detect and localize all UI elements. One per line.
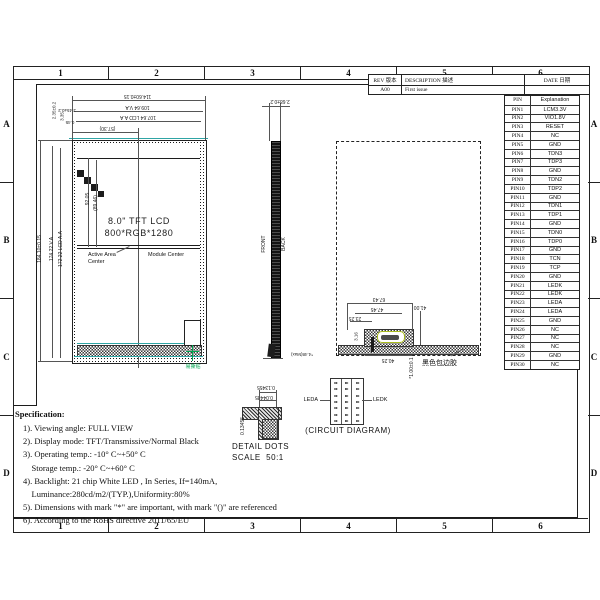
pin-signal: GND [531, 317, 579, 325]
extension-line [38, 361, 72, 362]
fpc-connector-core [381, 335, 399, 340]
pin-signal: LCM3.3V [531, 106, 579, 114]
pin-row: PIN10 TDP2 [505, 184, 579, 193]
pin-row: PIN27 NC [505, 334, 579, 343]
extension-line [276, 390, 277, 407]
pin-row: PIN30 NC [505, 360, 579, 369]
pin-signal: TDN3 [531, 150, 579, 158]
tear-sticker-mark-v [192, 345, 193, 361]
extension-line [205, 96, 206, 140]
pin-row: PIN6 TDN3 [505, 149, 579, 158]
pin-row: PIN15 TDN0 [505, 228, 579, 237]
pin-row: PIN5 GND [505, 140, 579, 149]
diode-icon: ▸▸ [352, 418, 363, 424]
pin-signal: GND [531, 194, 579, 202]
bottom-notch [184, 320, 201, 346]
side-back-label: BACK [281, 232, 287, 256]
dim-center-y-ref: (89.46) [93, 188, 99, 218]
dim-total-width: 114.60±0.15 [100, 93, 175, 99]
pin-row: PIN28 NC [505, 342, 579, 351]
pin-header: PIN [505, 96, 531, 105]
diode-icon: ▸▸ [331, 418, 342, 424]
pin-signal: LEDK [531, 282, 579, 290]
spec-line: 6). According to the RoHS directive 2011… [23, 514, 277, 527]
panel-title-line1: 8.0" TFT LCD [92, 216, 186, 226]
pin-number: PIN13 [505, 211, 531, 219]
pin-number: PIN4 [505, 132, 531, 140]
pin-number: PIN2 [505, 115, 531, 123]
zone-number: 5 [396, 519, 492, 532]
dimension-line [365, 355, 412, 356]
extension-line [38, 140, 72, 141]
dimension-line [420, 311, 421, 345]
pin-number: PIN9 [505, 176, 531, 184]
pin-row: PIN22 LEDK [505, 290, 579, 299]
pin-table-header: PIN Explanation [505, 96, 579, 105]
zone-strip-right: ABCD [588, 66, 600, 531]
pin-row: PIN25 GND [505, 316, 579, 325]
date-value [524, 85, 589, 95]
pin-number: PIN29 [505, 352, 531, 360]
extension-line [72, 96, 73, 140]
pin-signal: GND [531, 352, 579, 360]
pin-row: PIN13 TDP1 [505, 210, 579, 219]
pin-signal: TDN0 [531, 229, 579, 237]
zone-number: 3 [204, 66, 300, 79]
pin-table: PIN Explanation PIN1 LCM3.3V PIN2 VIO1.8… [504, 95, 580, 370]
inner-frame-jog [14, 405, 37, 406]
diode-icon: ▸▸ [342, 418, 353, 424]
pin-signal: VIO1.8V [531, 115, 579, 123]
pin-signal: NC [531, 335, 579, 343]
dimension-line [76, 121, 201, 122]
fpc-dark-tab [371, 337, 374, 352]
side-view-bar [271, 141, 281, 359]
leda-label: LEDA [298, 397, 318, 403]
zone-letter: C [0, 298, 13, 415]
pin-signal: GND [531, 247, 579, 255]
dim-offset-y1: 2.35±0.2 [52, 96, 57, 126]
description-value: First issue [401, 85, 524, 95]
dim-offset-y2: 3.35 [60, 107, 65, 127]
revision-table: REV 版本 DESCRIPTION 描述 DATE 日期 A00 First … [368, 74, 590, 95]
pin-row: PIN2 VIO1.8V [505, 114, 579, 123]
dimension-line [72, 132, 138, 133]
side-front-label: FRONT [261, 231, 267, 257]
circuit-diagram-caption: (CIRCUIT DIAGRAM) [300, 426, 396, 435]
dim-half-width: (57.30) [80, 125, 135, 131]
pin-number: PIN27 [505, 335, 531, 343]
explanation-header: Explanation [531, 96, 579, 105]
pin-signal: TDN1 [531, 203, 579, 211]
spec-line: Storage temp.: -20° C~+60° C [23, 462, 277, 475]
pin-row: PIN18 TCN [505, 254, 579, 263]
dim-offset-left: 23.25 [337, 315, 373, 321]
dim-side-thickness: 2.68±0.2 [261, 98, 299, 104]
pin-number: PIN14 [505, 220, 531, 228]
pin-number: PIN17 [505, 247, 531, 255]
pin-signal: TDN2 [531, 176, 579, 184]
pin-number: PIN30 [505, 361, 531, 369]
dimension-line [263, 358, 283, 359]
pin-number: PIN3 [505, 123, 531, 131]
dim-bottom: 40.25 [366, 357, 410, 363]
spec-line: 2). Display mode: TFT/Transmissive/Norma… [23, 435, 277, 448]
pin-signal: LEDA [531, 308, 579, 316]
pin-signal: TDP1 [531, 211, 579, 219]
pin-signal: GND [531, 141, 579, 149]
dim-total-height: 184.10±0.15 [37, 221, 43, 277]
pin-signal: TCN [531, 255, 579, 263]
dimension-line [74, 111, 203, 112]
dim-fpc-mid: 47.45 [355, 306, 399, 312]
zone-letter: D [588, 415, 600, 532]
lead-line [362, 400, 372, 401]
tear-sticker-label: 易撕贴 [181, 363, 205, 370]
dimension-line [350, 321, 372, 322]
pin-number: PIN18 [505, 255, 531, 263]
pin-number: PIN16 [505, 238, 531, 246]
spec-line: 1). Viewing angle: FULL VIEW [23, 422, 277, 435]
spec-line: 5). Dimensions with mark "*" are importa… [23, 501, 277, 514]
adhesive-label: 黑色包边胶 [422, 358, 457, 368]
ledk-label: LEDK [373, 397, 387, 403]
dimension-line [355, 313, 402, 314]
bottom-band-teal-bottom [74, 356, 203, 357]
specification-list: 1). Viewing angle: FULL VIEW2). Display … [23, 422, 277, 528]
pin-row: PIN3 RESET [505, 122, 579, 131]
pin-row: PIN14 GND [505, 219, 579, 228]
module-center-label: Module Center [148, 252, 184, 258]
dim-fpc-total: 67.43 [352, 296, 406, 302]
pin-signal: NC [531, 326, 579, 334]
pin-signal: TCP [531, 264, 579, 272]
rev-value: A00 [369, 85, 401, 95]
pin-row: PIN12 TDN1 [505, 202, 579, 211]
pin-number: PIN28 [505, 343, 531, 351]
dimension-line [347, 303, 412, 304]
pin-signal: GND [531, 220, 579, 228]
pin-number: PIN22 [505, 291, 531, 299]
pin-number: PIN11 [505, 194, 531, 202]
pin-signal: NC [531, 343, 579, 351]
pin-number: PIN1 [505, 106, 531, 114]
panel-title-line2: 800*RGB*1280 [92, 228, 186, 238]
pin-number: PIN23 [505, 299, 531, 307]
date-header: DATE 日期 [524, 75, 589, 85]
pin-signal: LEDK [531, 291, 579, 299]
dim-center-y: 92.05 [85, 186, 91, 212]
dim-back-thickness: *1.00±0.1 [409, 348, 415, 388]
pin-signal: NC [531, 132, 579, 140]
active-area-center-label2: Center [88, 259, 105, 265]
pin-number: PIN20 [505, 273, 531, 281]
pin-number: PIN10 [505, 185, 531, 193]
pin-row: PIN1 LCM3.3V [505, 105, 579, 114]
pin-signal: RESET [531, 123, 579, 131]
pin-number: PIN21 [505, 282, 531, 290]
pin-row: PIN4 NC [505, 131, 579, 140]
pin-row: PIN8 GND [505, 166, 579, 175]
pin-signal: LEDA [531, 299, 579, 307]
pin-number: PIN5 [505, 141, 531, 149]
extension-line [269, 103, 270, 141]
pin-number: PIN6 [505, 150, 531, 158]
pin-number: PIN19 [505, 264, 531, 272]
description-header: DESCRIPTION 描述 [401, 75, 524, 85]
pin-row: PIN7 TDP3 [505, 158, 579, 167]
pin-signal: TDP3 [531, 159, 579, 167]
active-area-center-label: Active Area [88, 252, 116, 258]
pin-row: PIN11 GND [505, 193, 579, 202]
dim-small-left: 3.16 [354, 328, 359, 346]
zone-number: 1 [13, 66, 108, 79]
dim-va-width: 109.64 V.A [100, 104, 175, 110]
dim-va-height: 174.22 V.A [49, 227, 55, 271]
zone-letter: A [0, 66, 13, 182]
pin-row: PIN9 TDN2 [505, 175, 579, 184]
pin-number: PIN25 [505, 317, 531, 325]
detail-dim-h1: 0.13455 [248, 384, 284, 390]
center-double-line [77, 248, 200, 249]
back-view-outline [336, 141, 481, 356]
pin-row: PIN21 LEDK [505, 281, 579, 290]
pin-row: PIN16 TDP0 [505, 237, 579, 246]
pin-number: PIN8 [505, 167, 531, 175]
pin-row: PIN26 NC [505, 325, 579, 334]
bottom-band-teal-top [77, 343, 200, 344]
pin-row: PIN17 GND [505, 246, 579, 255]
pin-signal: GND [531, 273, 579, 281]
dimension-line [259, 400, 276, 401]
pin-row: PIN20 GND [505, 272, 579, 281]
drawing-sheet: 123456 123456 ABCD ABCD REV 版本 DESCRIPTI… [0, 0, 600, 600]
diode-grid: ▸▸▸▸▸▸▸▸▸▸▸▸▸▸▸▸▸▸▸▸▸▸▸▸▸▸▸▸▸▸▸▸▸▸▸▸▸▸▸▸… [330, 378, 364, 425]
pin-row: PIN29 GND [505, 351, 579, 360]
spec-line: Luminance:280cd/m2/(TYP.),Uniformity:80% [23, 488, 277, 501]
pin-number: PIN15 [505, 229, 531, 237]
pin-row: PIN19 TCP [505, 263, 579, 272]
lead-line [320, 400, 330, 401]
dim-aa-height: 172.22 LCD A.A [58, 219, 64, 279]
zone-strip-left: ABCD [0, 66, 13, 531]
specification-title: Specification: [15, 409, 65, 419]
dimension-line [72, 100, 205, 101]
spec-line: 4). Backlight: 21 chip White LED , In Se… [23, 475, 277, 488]
zone-number: 6 [492, 519, 588, 532]
zone-number: 2 [108, 66, 204, 79]
zone-letter: B [0, 182, 13, 299]
pin-number: PIN24 [505, 308, 531, 316]
spec-line: 3). Operating temp.: -10° C~+50° C [23, 448, 277, 461]
pin-number: PIN7 [505, 159, 531, 167]
dimension-line [259, 392, 276, 393]
rev-header: REV 版本 [369, 75, 401, 85]
pin-number: PIN26 [505, 326, 531, 334]
pin-signal: NC [531, 361, 579, 369]
step-mark [77, 170, 84, 177]
dim-side-max: *4.48(Max) [281, 352, 323, 357]
pin-number: PIN12 [505, 203, 531, 211]
pin-rows: PIN1 LCM3.3V PIN2 VIO1.8V PIN3 RESET PIN… [505, 105, 579, 369]
zone-number: 4 [300, 519, 396, 532]
extension-line [280, 103, 281, 141]
zone-letter: D [0, 415, 13, 532]
zone-letter: B [588, 182, 600, 299]
zone-letter: C [588, 298, 600, 415]
dimension-line [262, 106, 290, 107]
pin-signal: TDP0 [531, 238, 579, 246]
pin-row: PIN24 LEDA [505, 307, 579, 316]
pin-signal: TDP2 [531, 185, 579, 193]
dim-aa-width: 107.64 LCD A.A [97, 114, 179, 120]
pin-signal: GND [531, 167, 579, 175]
dim-right: 41.00 [404, 304, 436, 310]
pin-row: PIN23 LEDA [505, 298, 579, 307]
